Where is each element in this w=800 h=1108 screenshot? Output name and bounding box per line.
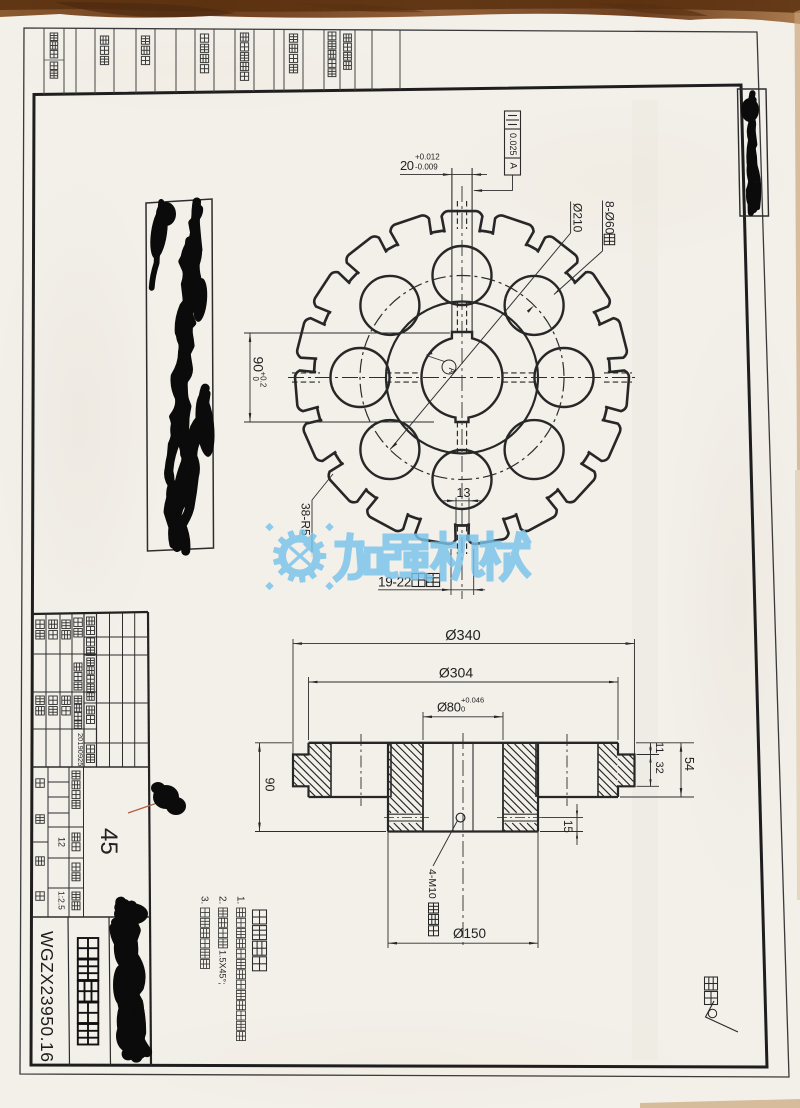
svg-text:Ø340: Ø340 <box>445 628 480 644</box>
svg-text:A: A <box>447 368 457 374</box>
svg-text:90: 90 <box>263 778 277 792</box>
svg-text:11: 11 <box>653 742 665 753</box>
svg-text:1.: 1. <box>235 896 246 904</box>
svg-text:0: 0 <box>461 705 465 714</box>
svg-text:12: 12 <box>57 837 67 847</box>
svg-text:15: 15 <box>561 820 573 833</box>
svg-text:0.025: 0.025 <box>508 133 518 156</box>
svg-text:54: 54 <box>682 757 696 771</box>
svg-text:8-Ø60: 8-Ø60 <box>603 201 617 235</box>
svg-text:Ø210: Ø210 <box>571 203 585 233</box>
svg-text:3.: 3. <box>199 896 210 904</box>
svg-text:+0.012: +0.012 <box>415 153 440 162</box>
svg-text:90: 90 <box>251 357 267 373</box>
svg-text:4-M10: 4-M10 <box>426 869 438 899</box>
svg-text:0: 0 <box>251 377 260 382</box>
svg-text:2.: 2. <box>217 896 228 904</box>
svg-text:32: 32 <box>653 762 665 774</box>
svg-text:+0.046: +0.046 <box>461 696 484 705</box>
svg-text:-0.009: -0.009 <box>415 163 438 172</box>
svg-text:13: 13 <box>457 486 471 500</box>
svg-text:WGZX23950.16: WGZX23950.16 <box>37 931 57 1062</box>
svg-text:20190925: 20190925 <box>76 733 85 766</box>
svg-text:45: 45 <box>95 828 122 855</box>
svg-text:A: A <box>508 163 519 170</box>
svg-text:Ø150: Ø150 <box>453 926 486 941</box>
svg-text:1:2.5: 1:2.5 <box>57 891 67 910</box>
svg-text:Ø80: Ø80 <box>437 700 461 715</box>
svg-text:1.5X45°;: 1.5X45°; <box>218 950 228 985</box>
svg-text:20: 20 <box>400 158 414 173</box>
svg-text:Ø304: Ø304 <box>439 664 473 680</box>
